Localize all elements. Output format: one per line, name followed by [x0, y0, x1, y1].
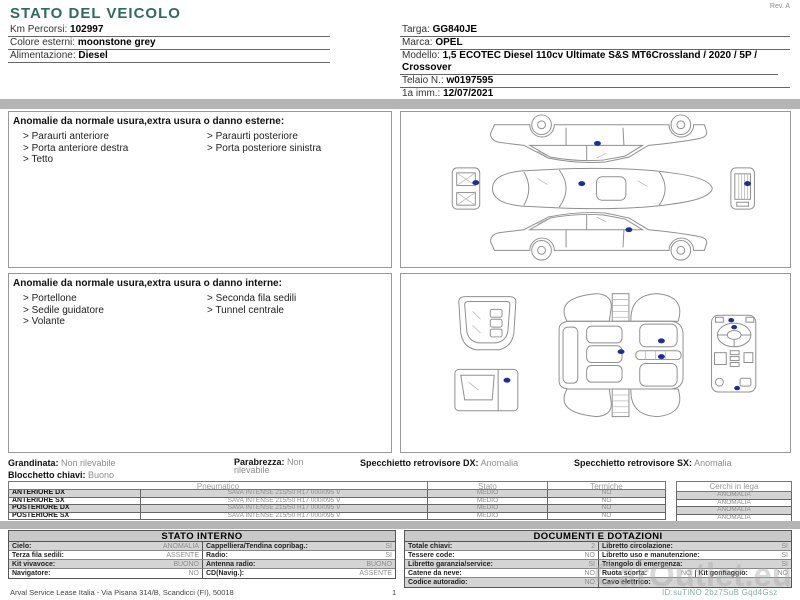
- col-header-pneumatico: Pneumatico: [8, 481, 428, 490]
- field-telaio: Telaio N.: w0197595: [400, 75, 790, 88]
- damage-marker: [472, 180, 479, 185]
- anomaly-item: > Paraurti anteriore: [23, 131, 128, 143]
- condition-summary: Grandinata: Non rilevabile Parabrezza: N…: [8, 458, 792, 480]
- damage-marker: [504, 378, 511, 383]
- condition-specchietto-sx: Specchietto retrovisore SX: Anomalia: [574, 458, 732, 468]
- anomaly-item: > Tunnel centrale: [207, 305, 296, 317]
- damage-marker: [578, 181, 585, 186]
- damage-marker: [658, 338, 665, 343]
- table-row: Kit vivavoce:BUONO Antenna radio:BUONO: [9, 560, 395, 569]
- condition-blocchetto-chiavi: Blocchetto chiavi: Buono: [8, 470, 114, 480]
- table-row: Terza fila sedili:ASSENTE Radio:SI: [9, 551, 395, 560]
- exterior-damage-diagram: [401, 112, 790, 267]
- col-header-termiche: Termiche: [548, 481, 666, 490]
- exterior-diagram-panel: [400, 111, 791, 268]
- field-targa: Targa: GG840JE: [400, 24, 790, 37]
- tyre-table-cerchi: Cerchi in lega ANOMALIA ANOMALIA ANOMALI…: [676, 481, 792, 522]
- revision-label: Rev. A: [770, 3, 790, 10]
- damage-marker: [744, 181, 751, 186]
- vehicle-summary-left: Km Percorsi: 102997 Colore esterni: moon…: [8, 24, 330, 63]
- table-row: POSTERIORE DX SAVA INTENSE 215/50 R17 00…: [8, 505, 666, 513]
- stato-interno-title: STATO INTERNO: [9, 531, 395, 542]
- separator-band-top: [0, 99, 800, 109]
- tyre-table-main: Pneumatico Stato Termiche ANTERIORE DX S…: [8, 481, 666, 520]
- exterior-anomalies-heading: Anomalie da normale usura,extra usura o …: [9, 112, 391, 129]
- field-colore-esterni: Colore esterni: moonstone grey: [8, 37, 330, 50]
- exterior-damage-markers: [472, 141, 751, 232]
- anomaly-item: > Porta posteriore sinistra: [207, 143, 321, 155]
- table-row: Totale chiavi:2 Libretto circolazione:SI: [405, 542, 791, 551]
- document-id: ID:suTlNO 2bz7SuB Gqd4Gsz: [662, 588, 778, 597]
- interior-anomalies-panel: Anomalie da normale usura,extra usura o …: [8, 273, 392, 453]
- tyre-table-header: Pneumatico Stato Termiche: [8, 481, 666, 490]
- condition-grandinata: Grandinata: Non rilevabile: [8, 458, 116, 468]
- anomaly-item: > Seconda fila sedili: [207, 293, 296, 305]
- table-row: ANTERIORE DX SAVA INTENSE 215/50 R17 000…: [8, 490, 666, 498]
- anomaly-item: > Porta anteriore destra: [23, 143, 128, 155]
- interior-anomalies-heading: Anomalie da normale usura,extra usura o …: [9, 274, 391, 291]
- anomaly-item: > Sedile guidatore: [23, 305, 104, 317]
- damage-marker: [728, 318, 734, 322]
- damage-marker: [658, 354, 665, 359]
- anomaly-item: > Tetto: [23, 154, 128, 166]
- table-row: ANTERIORE SX SAVA INTENSE 215/50 R17 000…: [8, 498, 666, 506]
- interior-anomalies-col2: > Seconda fila sedili > Tunnel centrale: [207, 293, 296, 316]
- documenti-title: DOCUMENTI E DOTAZIONI: [405, 531, 791, 542]
- vehicle-summary-right: Targa: GG840JE Marca: OPEL Modello: 1,5 …: [400, 24, 790, 101]
- exterior-anomalies-col2: > Paraurti posteriore > Porta posteriore…: [207, 131, 321, 154]
- damage-marker: [625, 227, 632, 232]
- anomaly-item: > Portellone: [23, 293, 104, 305]
- stato-interno-table: STATO INTERNO Cielo:ANOMALIA Cappelliera…: [8, 530, 396, 579]
- table-row: POSTERIORE SX SAVA INTENSE 215/50 R17 00…: [8, 513, 666, 521]
- damage-marker: [618, 349, 625, 354]
- interior-damage-diagram: [401, 274, 790, 452]
- field-alimentazione: Alimentazione: Diesel: [8, 50, 330, 63]
- field-marca: Marca: OPEL: [400, 37, 790, 50]
- damage-marker: [731, 325, 737, 329]
- anomaly-item: > Volante: [23, 316, 104, 328]
- table-row: Cielo:ANOMALIA Cappelliera/Tendina copri…: [9, 542, 395, 551]
- condition-specchietto-dx: Specchietto retrovisore DX: Anomalia: [360, 458, 518, 468]
- separator-band-bottom: [0, 521, 800, 529]
- tyre-table: Pneumatico Stato Termiche ANTERIORE DX S…: [8, 481, 792, 520]
- anomaly-item: > Paraurti posteriore: [207, 131, 321, 143]
- condition-parabrezza: Parabrezza: Non rilevabile: [234, 458, 320, 474]
- field-modello: Modello: 1,5 ECOTEC Diesel 110cv Ultimat…: [400, 50, 778, 75]
- table-row: Navigatore:NO CD(Navig.):ASSENTE: [9, 569, 395, 578]
- footer-page-number: 1: [392, 588, 396, 597]
- exterior-anomalies-panel: Anomalie da normale usura,extra usura o …: [8, 111, 392, 268]
- damage-marker: [594, 141, 601, 146]
- col-header-stato: Stato: [428, 481, 548, 490]
- page-title: STATO DEL VEICOLO: [10, 5, 181, 22]
- field-km-percorsi: Km Percorsi: 102997: [8, 24, 330, 37]
- interior-anomalies-col1: > Portellone > Sedile guidatore > Volant…: [23, 293, 104, 328]
- vehicle-status-report: STATO DEL VEICOLO Rev. A Km Percorsi: 10…: [0, 0, 800, 600]
- damage-marker: [734, 386, 740, 390]
- interior-diagram-panel: [400, 273, 791, 453]
- exterior-anomalies-col1: > Paraurti anteriore > Porta anteriore d…: [23, 131, 128, 166]
- footer-company: Arval Service Lease Italia - Via Pisana …: [10, 588, 234, 597]
